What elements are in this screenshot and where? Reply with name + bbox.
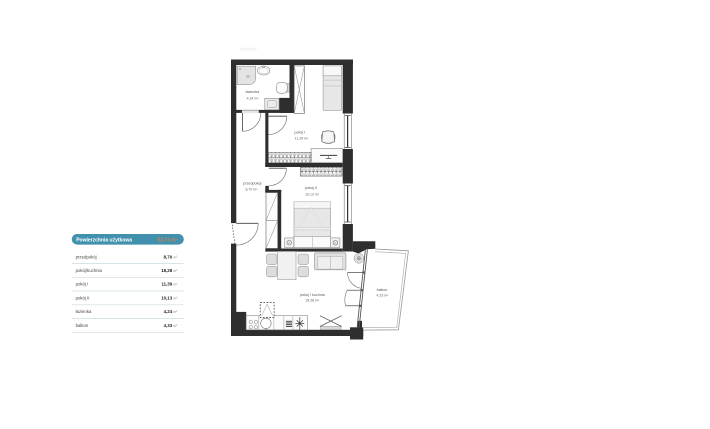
svg-text:10,13 m²: 10,13 m² (305, 193, 320, 197)
svg-text:18,28: 18,28 (161, 268, 173, 273)
svg-text:8,70: 8,70 (164, 254, 173, 259)
svg-text:4,24: 4,24 (164, 309, 173, 314)
svg-text:przedpokój: przedpokój (243, 181, 261, 185)
svg-text:balkon: balkon (377, 288, 388, 292)
svg-text:przedpokój: przedpokój (76, 254, 97, 259)
svg-text:11,39 m²: 11,39 m² (295, 136, 309, 140)
svg-text:łazienka: łazienka (246, 90, 260, 94)
svg-text:pokój / kuchnia: pokój / kuchnia (300, 293, 326, 297)
svg-text:pokój I: pokój I (294, 131, 305, 135)
svg-text:52,74 m²: 52,74 m² (158, 237, 178, 243)
svg-text:pokój I: pokój I (76, 282, 89, 287)
svg-text:pokój II: pokój II (305, 186, 317, 190)
svg-text:18,28 m²: 18,28 m² (305, 299, 320, 303)
svg-text:Powierzchnia użytkowa: Powierzchnia użytkowa (76, 237, 132, 243)
svg-text:balkon: balkon (76, 323, 89, 328)
svg-text:4,33 m²: 4,33 m² (376, 294, 389, 298)
svg-text:pokój II: pokój II (76, 296, 90, 301)
svg-text:11,39: 11,39 (161, 282, 172, 287)
svg-text:10,13: 10,13 (161, 296, 173, 301)
svg-text:4,33: 4,33 (164, 323, 173, 328)
svg-text:4,24 m²: 4,24 m² (247, 96, 260, 100)
svg-text:8,70 m²: 8,70 m² (245, 187, 258, 191)
svg-text:pokój/kuchnia: pokój/kuchnia (76, 268, 103, 273)
svg-text:łazienka: łazienka (76, 309, 92, 314)
